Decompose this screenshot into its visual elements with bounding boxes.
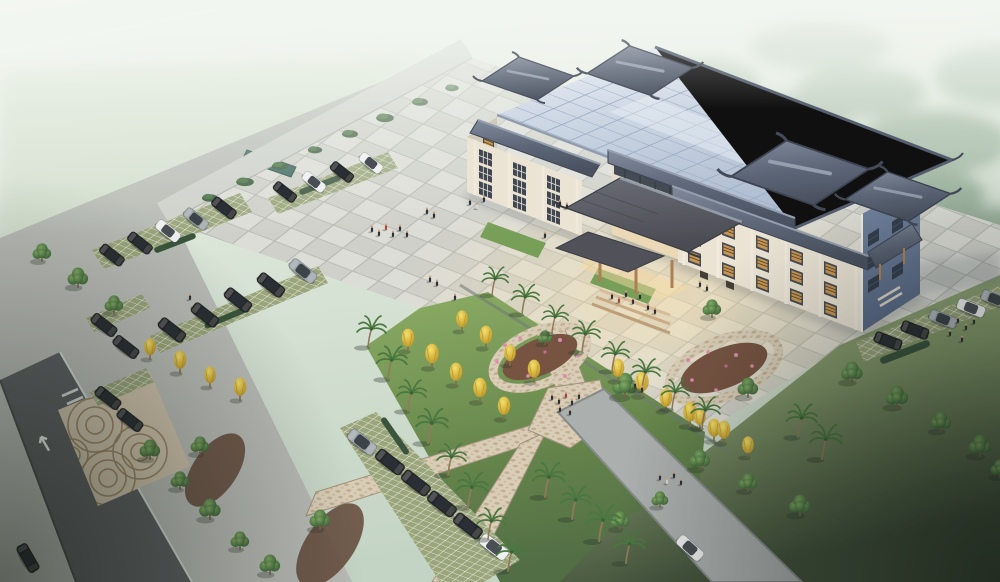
atmosphere xyxy=(0,0,1000,582)
architectural-rendering xyxy=(0,0,1000,582)
